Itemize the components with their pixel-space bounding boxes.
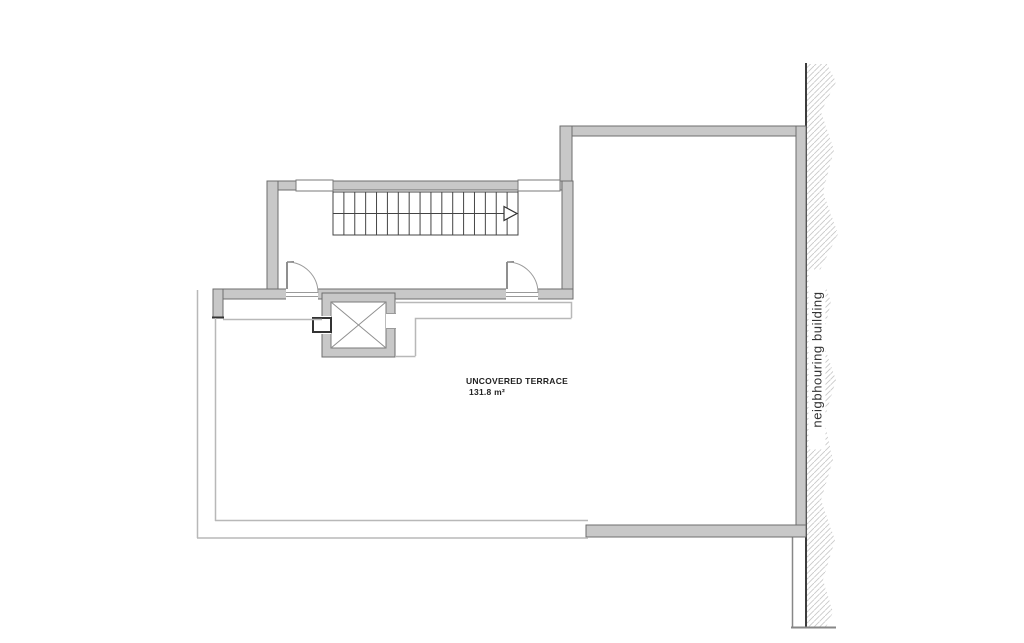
door-opening-right [506,288,538,300]
stairroom-right-wall [562,181,573,298]
connector-wall [560,126,572,186]
window-left [296,180,333,191]
floor-plan-drawing [0,0,1024,643]
floor-plan-canvas: UNCOVERED TERRACE 131.8 m² neigbhouring … [0,0,1024,643]
stairroom-left-wall [267,181,278,298]
neighbouring-building-label: neigbhouring building [809,270,826,450]
elevator-door-gap-right [386,313,396,329]
elevator-shaft [313,293,396,357]
left-stub-wall [213,289,223,318]
staircase [333,192,518,235]
terrace-walls [560,126,806,537]
terrace-name: UNCOVERED TERRACE [466,376,568,386]
terrace-top-wall [560,126,806,136]
window-right [518,180,560,191]
terrace-label: UNCOVERED TERRACE 131.8 m² [466,376,568,397]
terrace-bottom-wall [586,525,806,537]
terrace-right-wall [796,126,806,537]
terrace-area: 131.8 m² [469,387,568,398]
slab-edge-lines [223,303,572,357]
door-opening-left [286,288,318,300]
